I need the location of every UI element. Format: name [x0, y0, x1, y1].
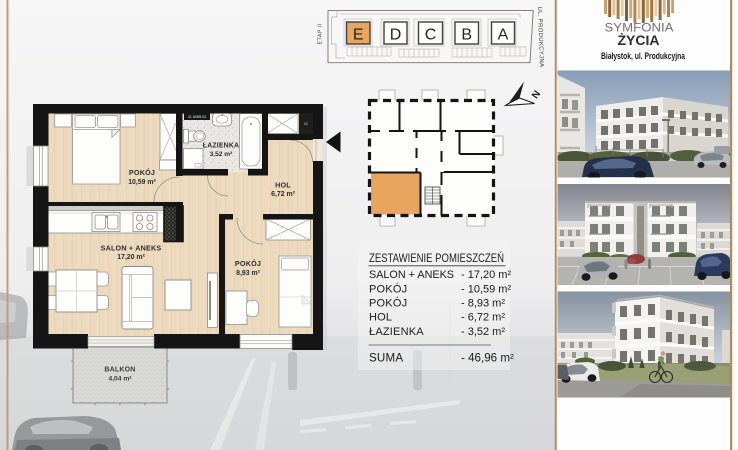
svg-text:ŻYCIA: ŻYCIA [618, 33, 660, 48]
svg-text:SUMA: SUMA [369, 352, 403, 365]
svg-text:POKÓJ: POKÓJ [369, 297, 407, 310]
svg-text:SALON + ANEKS: SALON + ANEKS [369, 269, 454, 281]
svg-text:E: E [353, 27, 364, 44]
svg-text:02: 02 [304, 122, 308, 126]
svg-text:POKÓJ: POKÓJ [235, 259, 261, 268]
svg-text:- 3,52 m²: - 3,52 m² [461, 326, 505, 338]
svg-text:C: C [425, 27, 437, 44]
svg-text:- 17,20 m²: - 17,20 m² [461, 269, 511, 281]
svg-text:Białystok, ul. Produkcyjna: Białystok, ul. Produkcyjna [601, 51, 686, 61]
svg-text:BALKON: BALKON [104, 367, 135, 374]
svg-text:6,72 m²: 6,72 m² [271, 191, 295, 198]
svg-text:ŁAZIENKA: ŁAZIENKA [369, 326, 424, 338]
svg-text:B: B [461, 27, 472, 44]
svg-text:4,04 m²: 4,04 m² [108, 376, 132, 383]
svg-text:ZESTAWIENIE POMIESZCZEŃ: ZESTAWIENIE POMIESZCZEŃ [369, 252, 504, 265]
svg-text:HOL: HOL [275, 181, 291, 190]
svg-text:8,93 m²: 8,93 m² [236, 270, 260, 277]
svg-text:17,20 m²: 17,20 m² [117, 254, 145, 261]
svg-text:- 6,72 m²: - 6,72 m² [461, 312, 505, 324]
svg-text:- 46,96 m²: - 46,96 m² [461, 352, 514, 365]
svg-text:HOL: HOL [369, 312, 392, 324]
svg-text:D: D [390, 27, 402, 44]
svg-text:- 8,93 m²: - 8,93 m² [461, 298, 505, 310]
svg-text:SALON + ANEKS: SALON + ANEKS [101, 244, 162, 253]
svg-text:10,59 m²: 10,59 m² [128, 179, 156, 186]
svg-text:POKÓJ: POKÓJ [369, 282, 407, 295]
svg-text:- 10,59 m²: - 10,59 m² [461, 283, 511, 295]
svg-text:ŁAZIENKA: ŁAZIENKA [203, 143, 239, 150]
svg-text:POKÓJ: POKÓJ [129, 168, 155, 177]
svg-text:ZL.5/085.03: ZL.5/085.03 [188, 115, 206, 119]
svg-text:A: A [498, 27, 509, 44]
svg-text:3,52 m²: 3,52 m² [210, 151, 234, 158]
svg-text:ETAP II: ETAP II [318, 24, 324, 45]
